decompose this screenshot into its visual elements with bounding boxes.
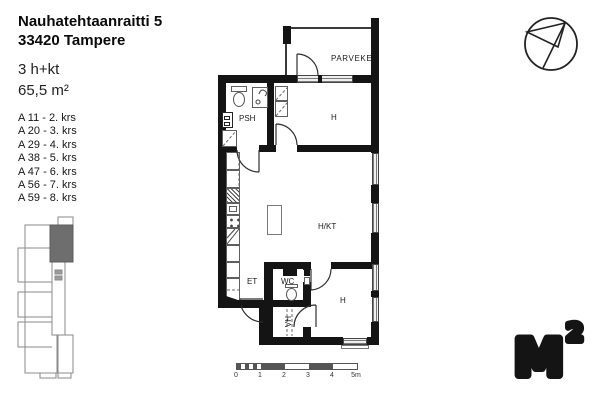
room-label-balcony: PARVEKE <box>331 54 372 63</box>
room-label-bathroom: PSH <box>239 114 255 123</box>
scale-segment <box>285 364 309 369</box>
scale-label: 2 <box>277 372 291 379</box>
wall-wedge <box>218 296 241 308</box>
plan-linework <box>0 0 600 400</box>
scale-label: 0 <box>229 372 243 379</box>
scale-label: 4 <box>325 372 339 379</box>
room-label-living-kitchen: H/KT <box>318 222 336 231</box>
room-label-entry: ET <box>247 277 257 286</box>
scale-segment <box>309 364 333 369</box>
room-label-wc: WC <box>281 277 294 286</box>
scale-label: 3 <box>301 372 315 379</box>
scale-segment <box>237 364 261 369</box>
scale-label: 1 <box>253 372 267 379</box>
scale-segment <box>261 364 285 369</box>
scale-label: 5m <box>349 372 363 379</box>
floor-plan-sheet: Nauhatehtaanraitti 5 33420 Tampere 3 h+k… <box>0 0 600 400</box>
room-label-bedroom-top: H <box>331 113 337 122</box>
scale-segment <box>333 364 357 369</box>
scale-bar <box>236 363 358 370</box>
room-label-closet: VH <box>284 316 293 327</box>
room-label-bedroom-bottom: H <box>340 296 346 305</box>
